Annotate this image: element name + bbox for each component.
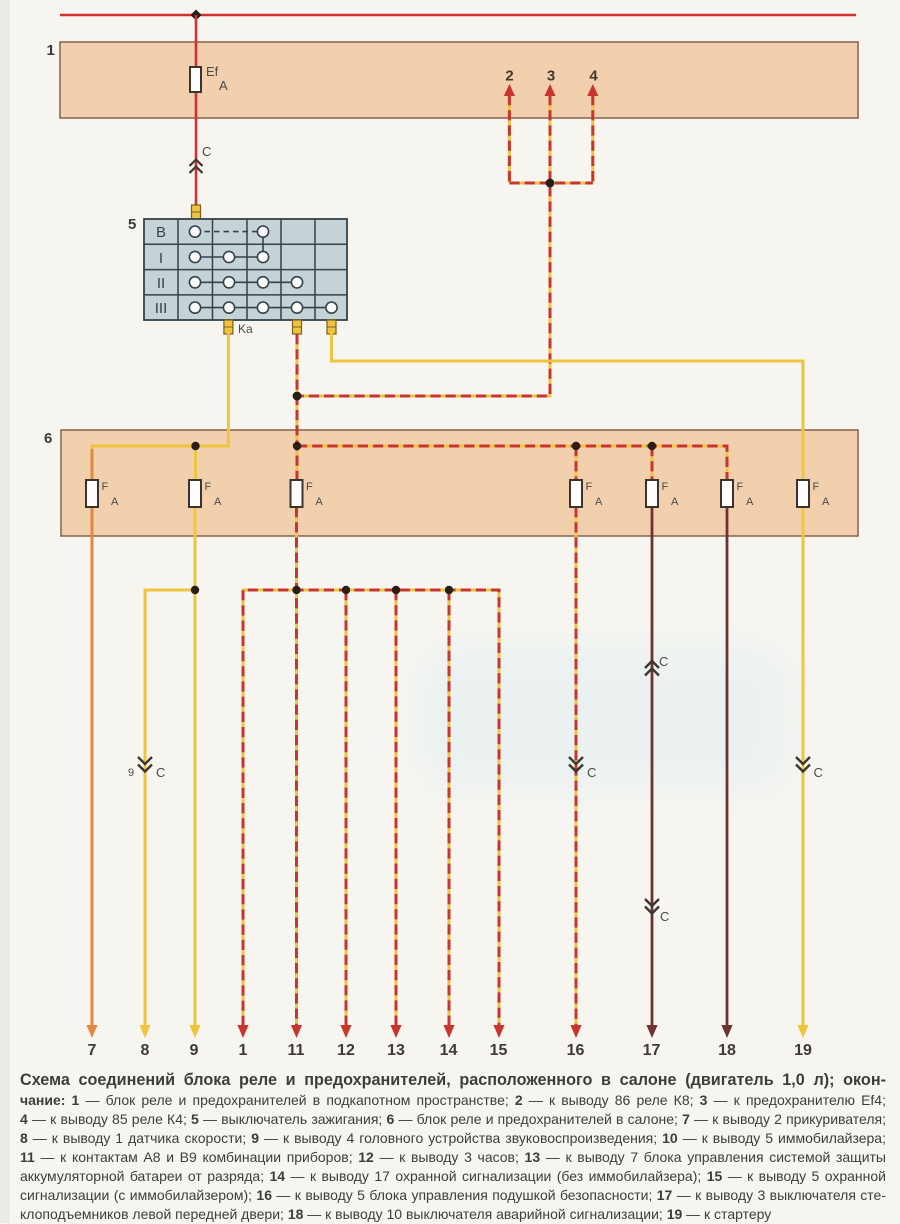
svg-text:A: A bbox=[111, 496, 119, 508]
svg-text:Ef: Ef bbox=[206, 64, 219, 79]
svg-text:B: B bbox=[156, 224, 166, 241]
svg-text:F: F bbox=[205, 481, 212, 493]
svg-text:1: 1 bbox=[239, 1042, 248, 1059]
svg-text:6: 6 bbox=[44, 430, 52, 447]
svg-text:4: 4 bbox=[589, 68, 598, 85]
svg-text:F: F bbox=[586, 481, 593, 493]
svg-text:A: A bbox=[595, 496, 603, 508]
svg-text:9: 9 bbox=[190, 1042, 199, 1059]
svg-text:F: F bbox=[306, 481, 313, 493]
svg-text:1: 1 bbox=[47, 42, 55, 59]
svg-text:17: 17 bbox=[643, 1042, 661, 1059]
svg-text:A: A bbox=[671, 496, 679, 508]
svg-text:13: 13 bbox=[387, 1042, 405, 1059]
svg-text:II: II bbox=[157, 275, 165, 292]
svg-text:9: 9 bbox=[128, 767, 134, 779]
svg-text:A: A bbox=[214, 496, 222, 508]
svg-text:7: 7 bbox=[88, 1042, 97, 1059]
svg-text:I: I bbox=[159, 250, 163, 267]
svg-text:12: 12 bbox=[337, 1042, 355, 1059]
svg-text:A: A bbox=[822, 496, 830, 508]
svg-text:F: F bbox=[737, 481, 744, 493]
svg-text:16: 16 bbox=[567, 1042, 585, 1059]
svg-text:C: C bbox=[587, 765, 596, 780]
svg-text:F: F bbox=[813, 481, 820, 493]
svg-text:C: C bbox=[814, 765, 823, 780]
svg-text:5: 5 bbox=[128, 216, 136, 233]
svg-text:A: A bbox=[219, 78, 228, 93]
svg-text:3: 3 bbox=[547, 68, 555, 85]
svg-text:8: 8 bbox=[141, 1042, 150, 1059]
svg-text:18: 18 bbox=[718, 1042, 736, 1059]
svg-text:C: C bbox=[659, 654, 668, 669]
svg-text:C: C bbox=[156, 765, 165, 780]
svg-text:C: C bbox=[202, 144, 211, 159]
svg-text:15: 15 bbox=[490, 1042, 508, 1059]
svg-text:III: III bbox=[155, 300, 168, 317]
svg-text:19: 19 bbox=[794, 1042, 812, 1059]
svg-text:2: 2 bbox=[505, 68, 513, 85]
svg-text:F: F bbox=[102, 481, 109, 493]
svg-text:Ka: Ka bbox=[238, 322, 253, 336]
svg-text:C: C bbox=[660, 909, 669, 924]
svg-text:F: F bbox=[662, 481, 669, 493]
svg-text:A: A bbox=[316, 496, 324, 508]
svg-text:A: A bbox=[746, 496, 754, 508]
svg-text:11: 11 bbox=[288, 1042, 305, 1059]
svg-text:14: 14 bbox=[440, 1042, 458, 1059]
